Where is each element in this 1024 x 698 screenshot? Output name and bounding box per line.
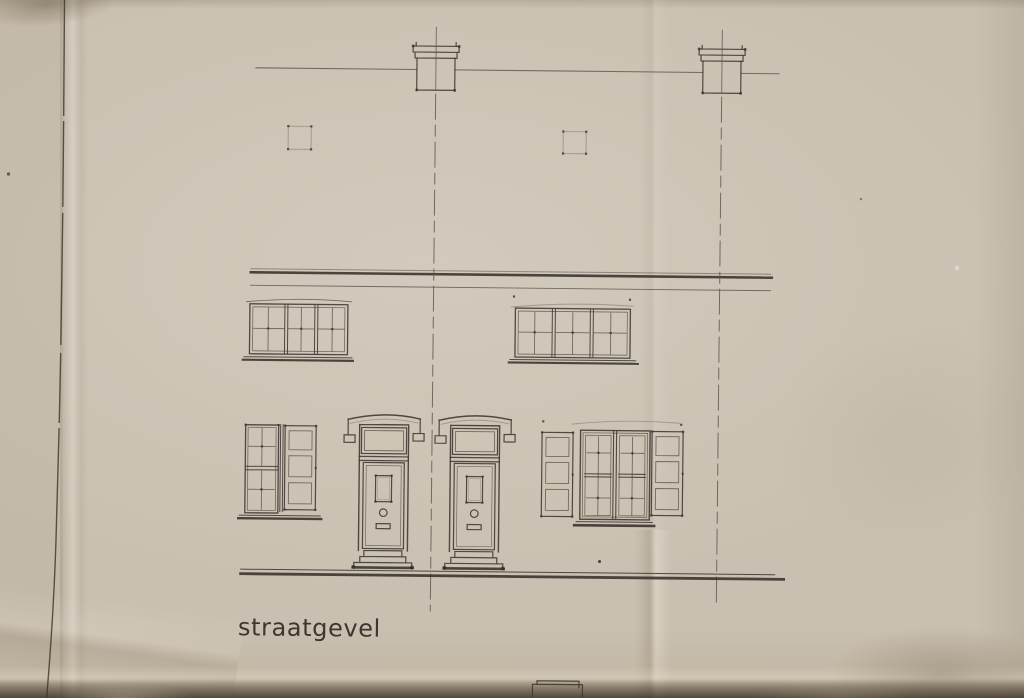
attic-window-right [562, 130, 587, 154]
door-right [434, 415, 516, 570]
facade-drawing [236, 25, 789, 698]
upper-window-left [243, 299, 354, 361]
shutter-ground-left [283, 425, 317, 512]
attic-window-left [287, 125, 312, 150]
door-left [343, 414, 425, 569]
paper-speck [598, 560, 601, 563]
paper-speck [7, 172, 10, 175]
step-detail-bottom [532, 681, 582, 697]
drawing-caption: straatgevel [238, 613, 381, 642]
photographed-drawing: straatgevel [0, 0, 1024, 698]
left-margin-line [47, 0, 65, 698]
drawing-canvas [0, 0, 1024, 698]
roof-line [256, 68, 779, 74]
chimney-right [697, 30, 746, 95]
ground-line [241, 569, 784, 579]
ground-window-left [238, 424, 322, 519]
chimney-left [411, 27, 460, 92]
party-wall-line-left [430, 94, 435, 611]
eaves-band [251, 269, 772, 291]
shutter-ground-right-2 [650, 430, 684, 517]
paper-marks [7, 0, 959, 698]
party-wall-line-right [716, 97, 721, 603]
paper-speck [860, 198, 863, 201]
upper-window-right [509, 295, 639, 363]
shutter-ground-right-1 [540, 431, 574, 518]
paper-speck-light [955, 266, 959, 270]
